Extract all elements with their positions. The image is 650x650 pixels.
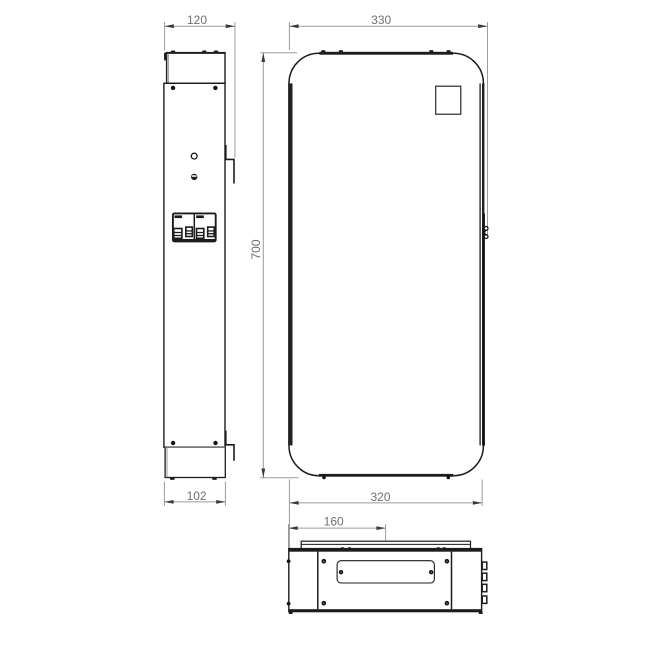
- svg-text:120: 120: [187, 13, 207, 27]
- svg-text:102: 102: [187, 489, 207, 503]
- svg-text:700: 700: [249, 239, 263, 259]
- svg-text:320: 320: [370, 490, 390, 504]
- svg-text:160: 160: [324, 515, 344, 529]
- svg-text:330: 330: [371, 13, 391, 27]
